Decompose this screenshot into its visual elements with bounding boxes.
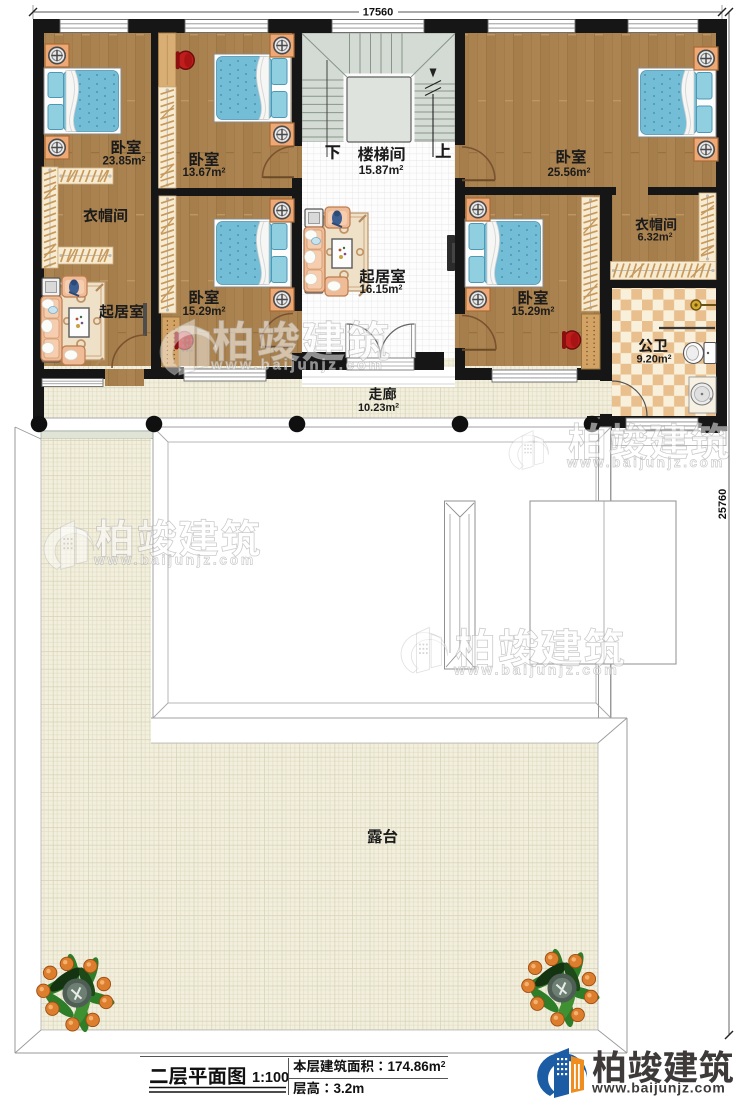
svg-text:www.baijunjz.com: www.baijunjz.com (93, 552, 256, 567)
svg-text:23.85m2: 23.85m2 (103, 155, 146, 168)
svg-text:15.29m2: 15.29m2 (183, 305, 226, 318)
svg-text:www.baijunjz.com: www.baijunjz.com (210, 357, 385, 373)
svg-text:3.2m: 3.2m (334, 1081, 365, 1096)
svg-text:13.67m2: 13.67m2 (183, 166, 226, 179)
svg-text:15.87m2: 15.87m2 (359, 163, 404, 177)
svg-text:www.baijunjz.com: www.baijunjz.com (453, 662, 619, 678)
svg-text:174.86m2: 174.86m2 (388, 1059, 446, 1074)
svg-text:10.23m2: 10.23m2 (358, 402, 399, 414)
svg-text:9.20m2: 9.20m2 (637, 354, 672, 366)
svg-text:16.15m2: 16.15m2 (360, 283, 403, 296)
svg-text:6.32m2: 6.32m2 (638, 232, 673, 244)
svg-text:1:100: 1:100 (252, 1070, 289, 1086)
svg-text:25760: 25760 (717, 489, 729, 520)
svg-text:17560: 17560 (363, 7, 394, 19)
svg-text:www.baijunjz.com: www.baijunjz.com (591, 1080, 726, 1096)
svg-text:25.56m2: 25.56m2 (548, 166, 591, 179)
svg-text:www.baijunjz.com: www.baijunjz.com (566, 455, 725, 470)
svg-text:15.29m2: 15.29m2 (512, 305, 555, 318)
